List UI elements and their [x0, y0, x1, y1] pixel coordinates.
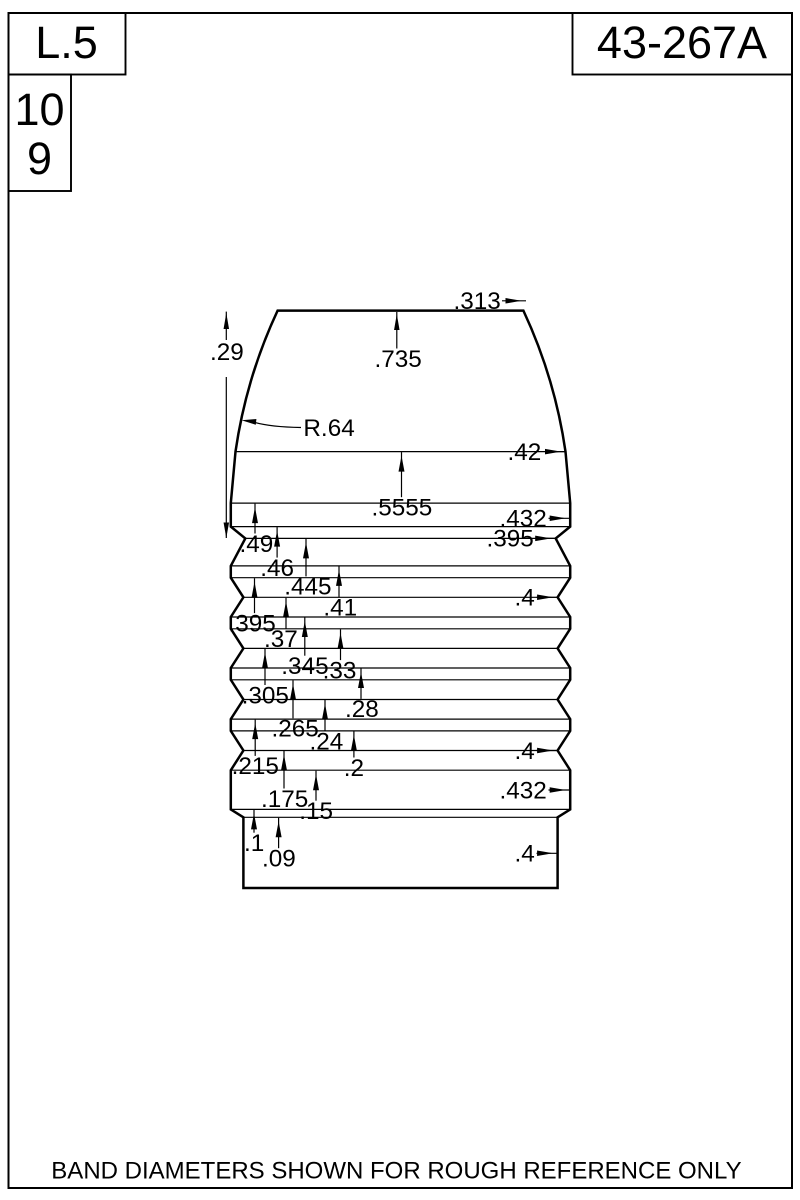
svg-text:.29: .29	[210, 339, 244, 366]
svg-text:9: 9	[27, 133, 52, 184]
svg-text:.49: .49	[240, 531, 274, 558]
svg-text:.313: .313	[454, 288, 501, 315]
svg-text:.15: .15	[299, 798, 333, 825]
svg-text:.4: .4	[515, 585, 535, 612]
svg-text:.4: .4	[515, 841, 535, 868]
svg-text:10: 10	[14, 84, 64, 135]
svg-text:.41: .41	[323, 594, 357, 621]
svg-text:.09: .09	[262, 846, 296, 873]
svg-text:43-267A: 43-267A	[597, 17, 767, 68]
svg-text:.305: .305	[242, 682, 289, 709]
svg-text:.4: .4	[515, 738, 535, 765]
svg-text:.24: .24	[310, 729, 344, 756]
svg-text:.2: .2	[344, 755, 364, 782]
svg-text:.5555: .5555	[372, 495, 433, 522]
svg-text:.37: .37	[264, 626, 298, 653]
svg-text:L.5: L.5	[35, 17, 98, 68]
svg-text:.28: .28	[345, 696, 379, 723]
svg-text:BAND DIAMETERS SHOWN FOR ROUGH: BAND DIAMETERS SHOWN FOR ROUGH REFERENCE…	[51, 1158, 741, 1185]
svg-text:.432: .432	[500, 777, 547, 804]
svg-text:.345: .345	[281, 653, 328, 680]
svg-text:R.64: R.64	[303, 415, 354, 442]
svg-text:.215: .215	[232, 753, 279, 780]
svg-text:.735: .735	[375, 346, 422, 373]
svg-text:.395: .395	[487, 526, 534, 553]
svg-text:.33: .33	[323, 657, 357, 684]
svg-text:.42: .42	[508, 439, 542, 466]
